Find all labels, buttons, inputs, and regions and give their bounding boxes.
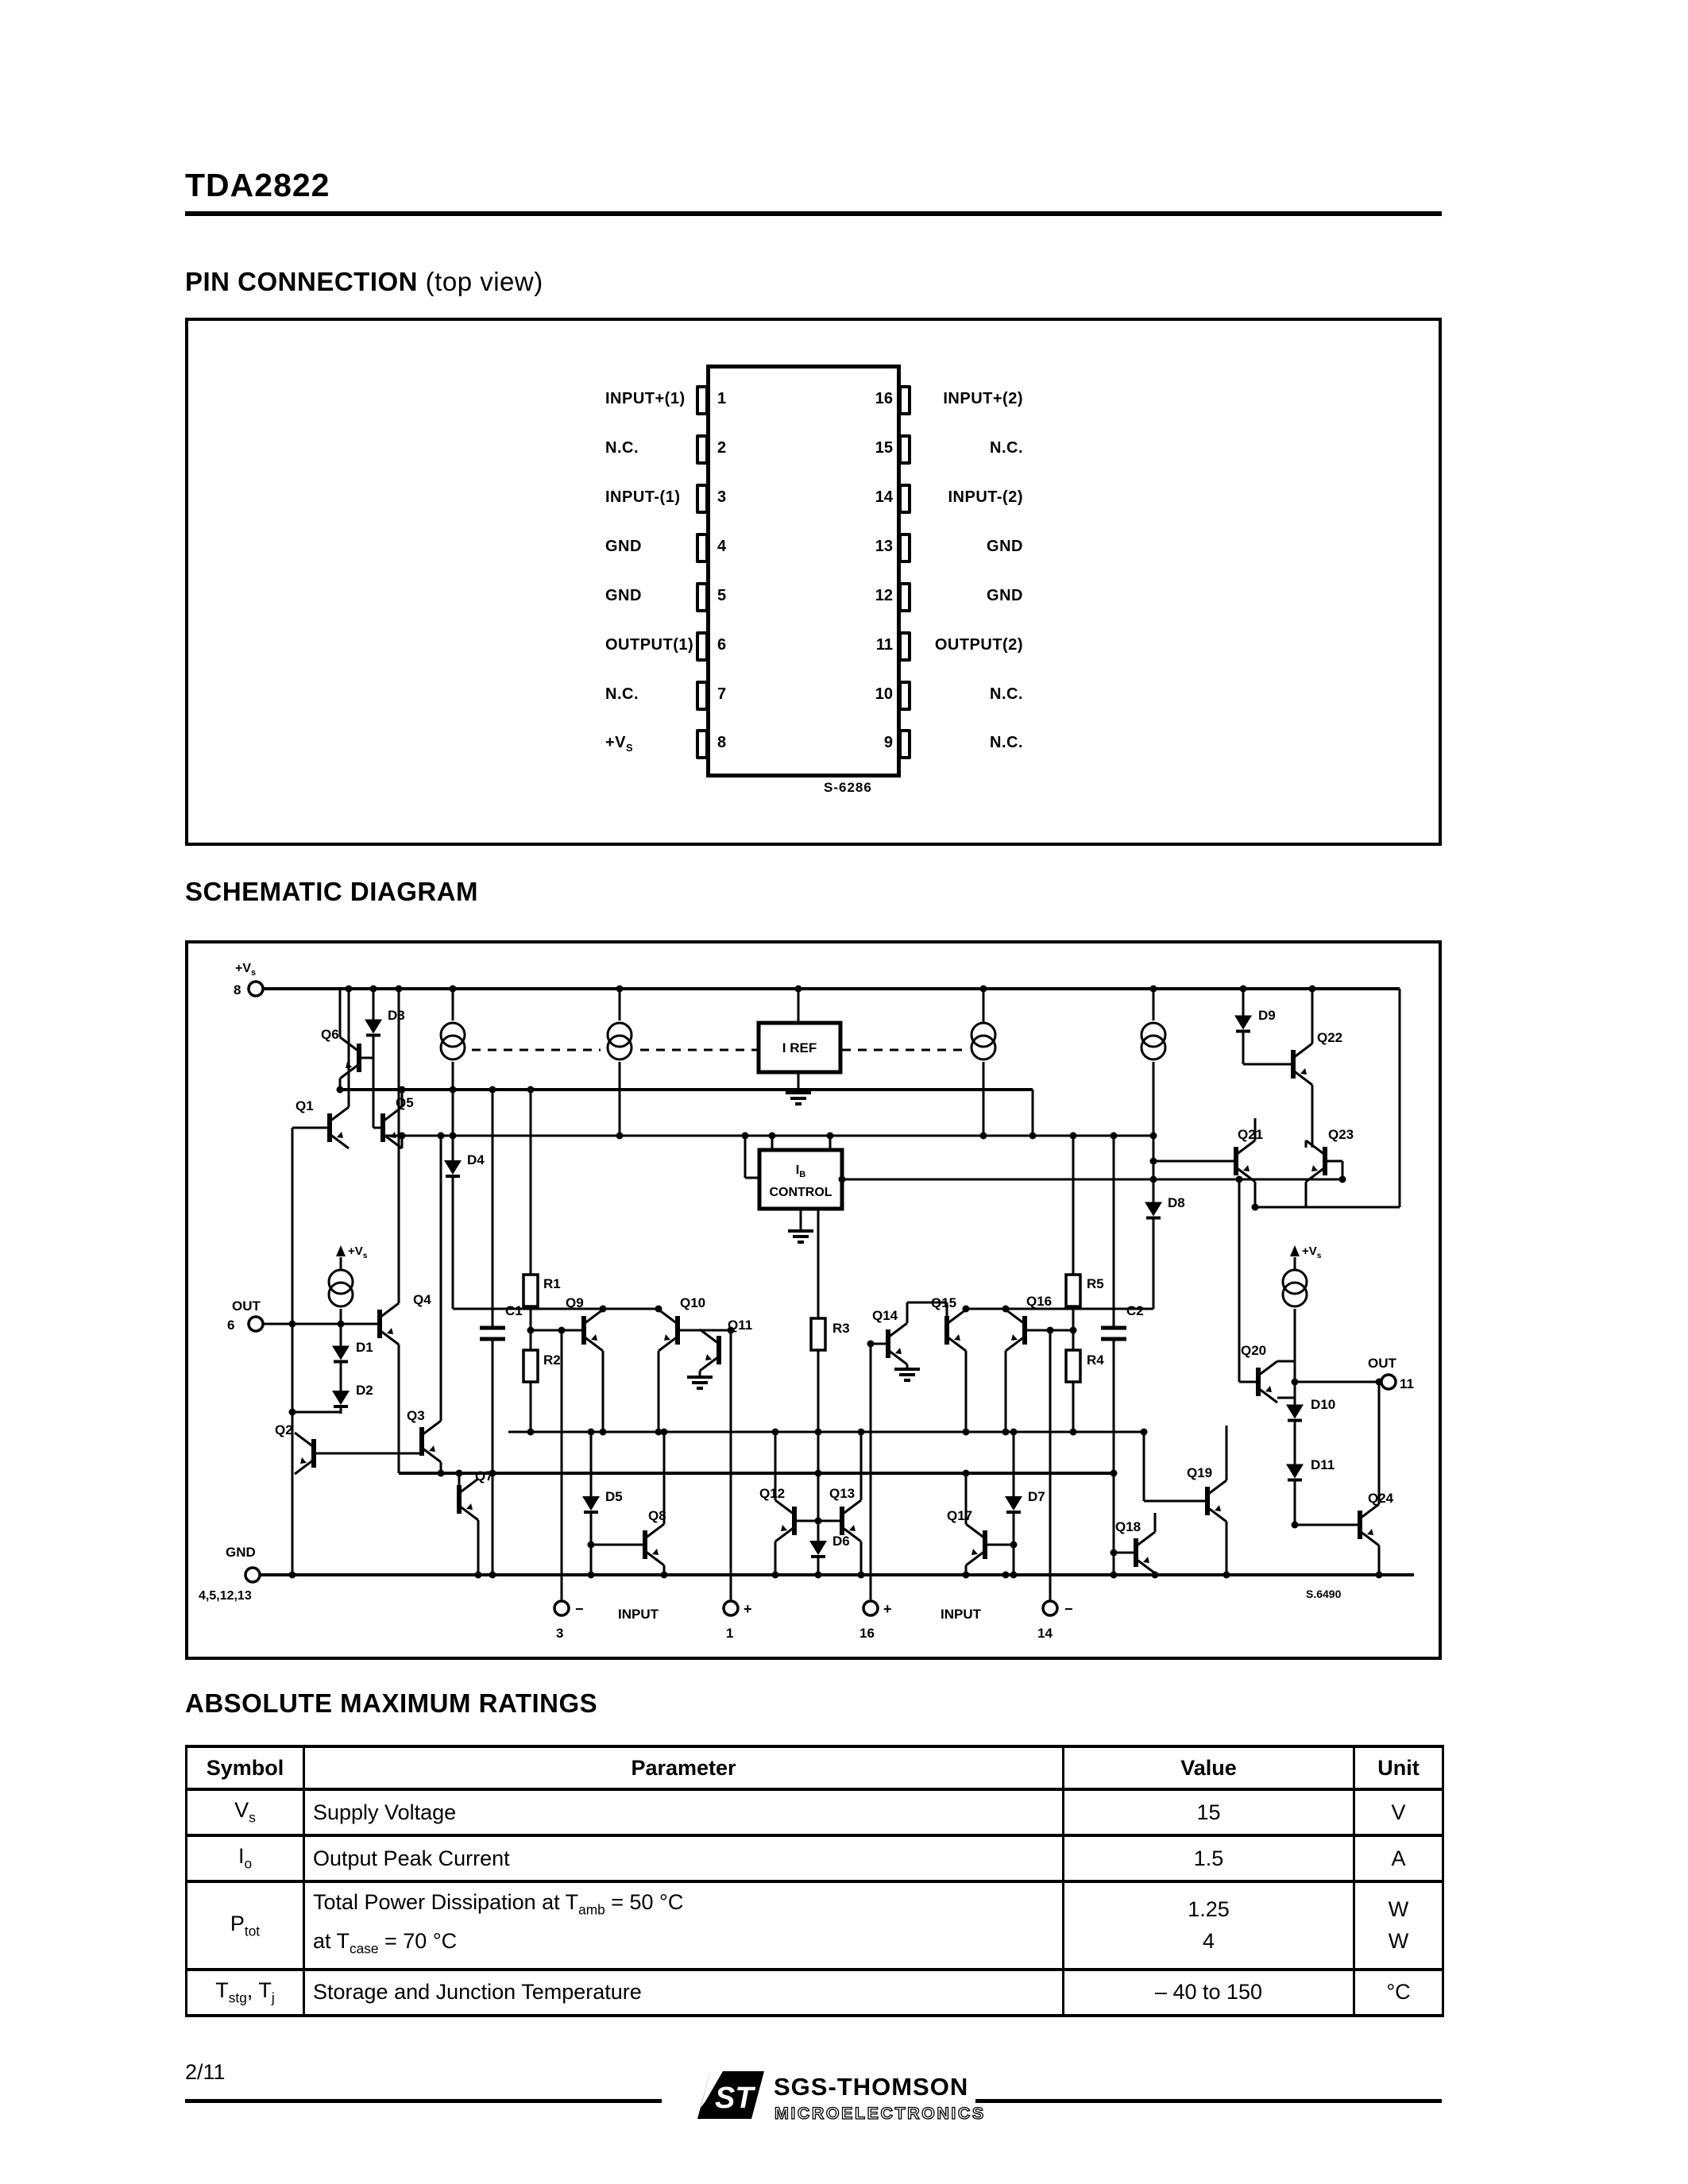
footer-page-number: 2/11 [185,2060,226,2085]
ratings-symbol-0: Vs [187,1789,304,1835]
ratings-unit-1: A [1354,1835,1443,1881]
schematic-figure: Q1Q2Q3Q4Q5Q6Q7Q8Q9Q10Q11Q12Q13Q14Q15Q16Q… [185,940,1442,1660]
svg-text:+: + [883,1601,892,1617]
pin-label-5: GND [605,587,701,605]
svg-text:D10: D10 [1311,1397,1335,1412]
svg-text:Q10: Q10 [680,1295,705,1310]
pin-stub-10 [898,681,911,711]
svg-text:C1: C1 [505,1303,523,1318]
svg-text:Q14: Q14 [872,1308,898,1323]
ratings-header-parameter: Parameter [304,1746,1064,1789]
pin-stub-16 [898,385,911,415]
pin-number-7: 7 [717,685,726,704]
svg-text:I REF: I REF [782,1040,817,1055]
ratings-symbol-1: Io [187,1835,304,1881]
svg-text:D7: D7 [1028,1489,1045,1504]
svg-text:16: 16 [859,1626,875,1641]
svg-text:−: − [575,1601,584,1617]
svg-text:D5: D5 [605,1489,623,1504]
svg-text:Q6: Q6 [321,1027,339,1042]
ratings-row-2: PtotTotal Power Dissipation at Tamb = 50… [187,1881,1443,1970]
pin-number-5: 5 [717,587,726,605]
pin-label-1: INPUT+(1) [605,390,701,408]
pin-number-16: 16 [861,390,893,408]
pin-label-10: N.C. [920,685,1023,704]
pin-stub-14 [898,484,911,514]
ratings-value-3: – 40 to 150 [1064,1970,1354,2016]
ratings-unit-2: WW [1354,1881,1443,1970]
pin-connection-heading-normal: (top view) [418,267,543,296]
ratings-value-1: 1.5 [1064,1835,1354,1881]
manufacturer-logo-svg: STSGS-THOMSONMICROELECTRONICS [682,2063,999,2135]
pin-number-3: 3 [717,488,726,507]
svg-text:D3: D3 [388,1008,405,1023]
ratings-header-row: SymbolParameterValueUnit [187,1746,1443,1789]
pin-label-12: GND [920,587,1023,605]
pin-stub-13 [898,533,911,563]
logo-line2: MICROELECTRONICS [774,2104,986,2123]
ratings-heading: ABSOLUTE MAXIMUM RATINGS [185,1688,597,1719]
svg-text:R1: R1 [543,1276,561,1291]
svg-text:3: 3 [556,1626,563,1641]
pin-stub-9 [898,729,911,759]
schematic-heading: SCHEMATIC DIAGRAM [185,877,478,907]
pin-figure-code: S-6286 [824,780,872,796]
pin-connection-figure: 1INPUT+(1)2N.C.3INPUT-(1)4GND5GND6OUTPUT… [185,318,1442,846]
ratings-header-unit: Unit [1354,1746,1443,1789]
svg-text:Q21: Q21 [1238,1127,1263,1142]
svg-text:4,5,12,13: 4,5,12,13 [199,1589,252,1603]
svg-text:INPUT: INPUT [941,1607,982,1622]
svg-text:D11: D11 [1311,1457,1335,1472]
svg-text:Q5: Q5 [396,1095,414,1110]
pin-label-9: N.C. [920,734,1023,752]
pin-label-4: GND [605,538,701,556]
svg-text:INPUT: INPUT [618,1607,659,1622]
pin-number-4: 4 [717,538,726,556]
svg-text:ST: ST [715,2082,755,2115]
svg-text:Q15: Q15 [931,1295,956,1310]
ratings-unit-3: °C [1354,1970,1443,2016]
ratings-symbol-2: Ptot [187,1881,304,1970]
pin-stub-15 [898,434,911,465]
svg-text:OUT: OUT [1368,1356,1397,1371]
pin-number-10: 10 [861,685,893,704]
pin-number-15: 15 [861,439,893,457]
ratings-parameter-3: Storage and Junction Temperature [304,1970,1064,2016]
svg-text:+: + [744,1601,752,1617]
svg-text:GND: GND [226,1545,256,1560]
svg-text:R5: R5 [1087,1276,1104,1291]
pin-label-7: N.C. [605,685,701,704]
svg-text:D1: D1 [356,1340,373,1355]
ratings-parameter-2: Total Power Dissipation at Tamb = 50 °Ca… [304,1881,1064,1970]
svg-text:R3: R3 [832,1321,850,1336]
footer-rule-right [975,2099,1442,2103]
ratings-row-1: IoOutput Peak Current1.5A [187,1835,1443,1881]
pin-number-6: 6 [717,636,726,654]
pin-label-2: N.C. [605,439,701,457]
svg-text:D9: D9 [1258,1008,1276,1023]
pin-number-1: 1 [717,390,726,408]
svg-text:D4: D4 [467,1152,485,1167]
svg-text:Q20: Q20 [1241,1343,1266,1358]
svg-text:Q24: Q24 [1368,1491,1394,1506]
ratings-value-0: 15 [1064,1789,1354,1835]
ratings-header-value: Value [1064,1746,1354,1789]
pin-number-8: 8 [717,734,726,752]
pin-connection-heading: PIN CONNECTION (top view) [185,267,543,297]
pin-number-14: 14 [861,488,893,507]
svg-text:−: − [1064,1601,1073,1617]
pin-label-16: INPUT+(2) [920,390,1023,408]
svg-text:S.6490: S.6490 [1306,1588,1342,1600]
svg-text:Q23: Q23 [1328,1127,1354,1142]
ratings-table: SymbolParameterValueUnitVsSupply Voltage… [185,1745,1442,2017]
pin-label-13: GND [920,538,1023,556]
ratings-row-3: Tstg, TjStorage and Junction Temperature… [187,1970,1443,2016]
manufacturer-logo: STSGS-THOMSONMICROELECTRONICS [682,2063,999,2139]
svg-text:D8: D8 [1168,1195,1185,1210]
svg-text:D6: D6 [832,1534,850,1549]
svg-text:11: 11 [1400,1376,1414,1391]
svg-text:Q4: Q4 [413,1292,431,1307]
ratings-value-2: 1.254 [1064,1881,1354,1970]
ratings-symbol-3: Tstg, Tj [187,1970,304,2016]
title-rule [185,211,1442,216]
pin-label-8: +VS [605,734,701,754]
svg-text:Q16: Q16 [1026,1294,1052,1309]
pin-number-13: 13 [861,538,893,556]
pin-label-3: INPUT-(1) [605,488,701,507]
pin-label-11: OUTPUT(2) [920,636,1023,654]
svg-text:8: 8 [234,982,241,997]
svg-text:Q1: Q1 [295,1098,314,1113]
pin-stub-11 [898,631,911,662]
svg-text:14: 14 [1037,1626,1053,1641]
svg-text:6: 6 [227,1318,234,1333]
schematic-svg: Q1Q2Q3Q4Q5Q6Q7Q8Q9Q10Q11Q12Q13Q14Q15Q16Q… [185,940,1442,1660]
pin-label-15: N.C. [920,439,1023,457]
svg-text:Q18: Q18 [1115,1519,1141,1534]
ratings-row-0: VsSupply Voltage15V [187,1789,1443,1835]
pin-stub-12 [898,582,911,612]
svg-text:Q3: Q3 [407,1408,425,1423]
pin-label-14: INPUT-(2) [920,488,1023,507]
svg-text:Q17: Q17 [947,1508,972,1523]
svg-text:Q9: Q9 [566,1295,584,1310]
svg-text:D2: D2 [356,1383,373,1398]
ratings-parameter-0: Supply Voltage [304,1789,1064,1835]
svg-text:Q2: Q2 [275,1422,293,1437]
svg-text:Q19: Q19 [1187,1465,1212,1480]
svg-text:R4: R4 [1087,1352,1104,1368]
datasheet-page: TDA2822 PIN CONNECTION (top view) 1INPUT… [0,0,1688,2184]
svg-text:Q8: Q8 [648,1508,666,1523]
pin-number-9: 9 [861,734,893,752]
ratings-table-element: SymbolParameterValueUnitVsSupply Voltage… [185,1745,1444,2017]
svg-text:OUT: OUT [232,1298,261,1314]
ratings-unit-0: V [1354,1789,1443,1835]
ratings-parameter-1: Output Peak Current [304,1835,1064,1881]
pin-number-2: 2 [717,439,726,457]
svg-text:Q22: Q22 [1317,1030,1342,1045]
page-title: TDA2822 [185,167,330,204]
pin-number-12: 12 [861,587,893,605]
ic-package-outline [706,365,901,778]
pin-connection-heading-bold: PIN CONNECTION [185,267,418,296]
footer-rule-left [185,2099,662,2103]
svg-text:CONTROL: CONTROL [769,1186,832,1199]
logo-line1: SGS-THOMSON [774,2073,968,2101]
svg-text:C2: C2 [1126,1303,1144,1318]
svg-text:Q13: Q13 [829,1486,855,1501]
st-glyph: ST [697,2071,764,2119]
ratings-header-symbol: Symbol [187,1746,304,1789]
svg-text:1: 1 [726,1626,733,1641]
svg-text:Q12: Q12 [759,1486,785,1501]
svg-text:R2: R2 [543,1352,561,1368]
pin-label-6: OUTPUT(1) [605,636,701,654]
pin-number-11: 11 [861,636,893,654]
